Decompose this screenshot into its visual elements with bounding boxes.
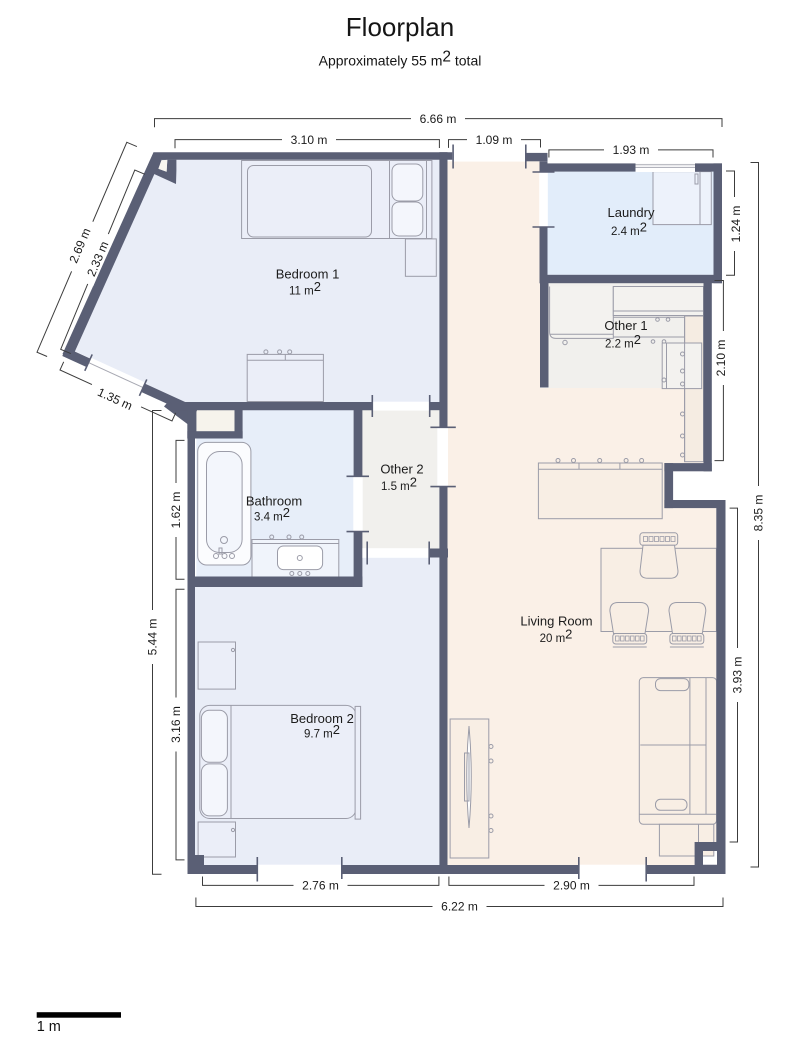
svg-text:5.44 m: 5.44 m — [146, 619, 160, 656]
svg-text:1.35 m: 1.35 m — [95, 385, 134, 413]
svg-text:2.90 m: 2.90 m — [553, 879, 590, 893]
svg-text:Bedroom 1: Bedroom 1 — [276, 267, 340, 282]
svg-text:6.22 m: 6.22 m — [441, 900, 478, 914]
svg-text:Floorplan: Floorplan — [346, 12, 454, 42]
svg-text:Living Room: Living Room — [520, 614, 592, 629]
svg-text:Other 1: Other 1 — [604, 318, 647, 333]
svg-text:1.93 m: 1.93 m — [613, 143, 650, 157]
svg-text:1 m: 1 m — [37, 1019, 61, 1035]
svg-text:2.10 m: 2.10 m — [714, 340, 728, 377]
svg-text:Laundry: Laundry — [608, 205, 655, 220]
svg-text:8.35 m: 8.35 m — [752, 495, 766, 532]
svg-text:1.62 m: 1.62 m — [169, 492, 183, 529]
svg-text:3.93 m: 3.93 m — [731, 657, 745, 694]
svg-text:Bathroom: Bathroom — [246, 494, 302, 509]
svg-text:6.66 m: 6.66 m — [420, 112, 457, 126]
svg-text:1.09 m: 1.09 m — [476, 133, 513, 147]
svg-text:1.24 m: 1.24 m — [729, 206, 743, 243]
svg-text:Other 2: Other 2 — [380, 462, 423, 477]
svg-text:3.16 m: 3.16 m — [169, 706, 183, 743]
svg-text:3.10 m: 3.10 m — [291, 133, 328, 147]
svg-text:2.76 m: 2.76 m — [302, 879, 339, 893]
svg-text:Approximately 55 m2 total: Approximately 55 m2 total — [319, 49, 482, 69]
svg-text:Bedroom 2: Bedroom 2 — [290, 711, 354, 726]
